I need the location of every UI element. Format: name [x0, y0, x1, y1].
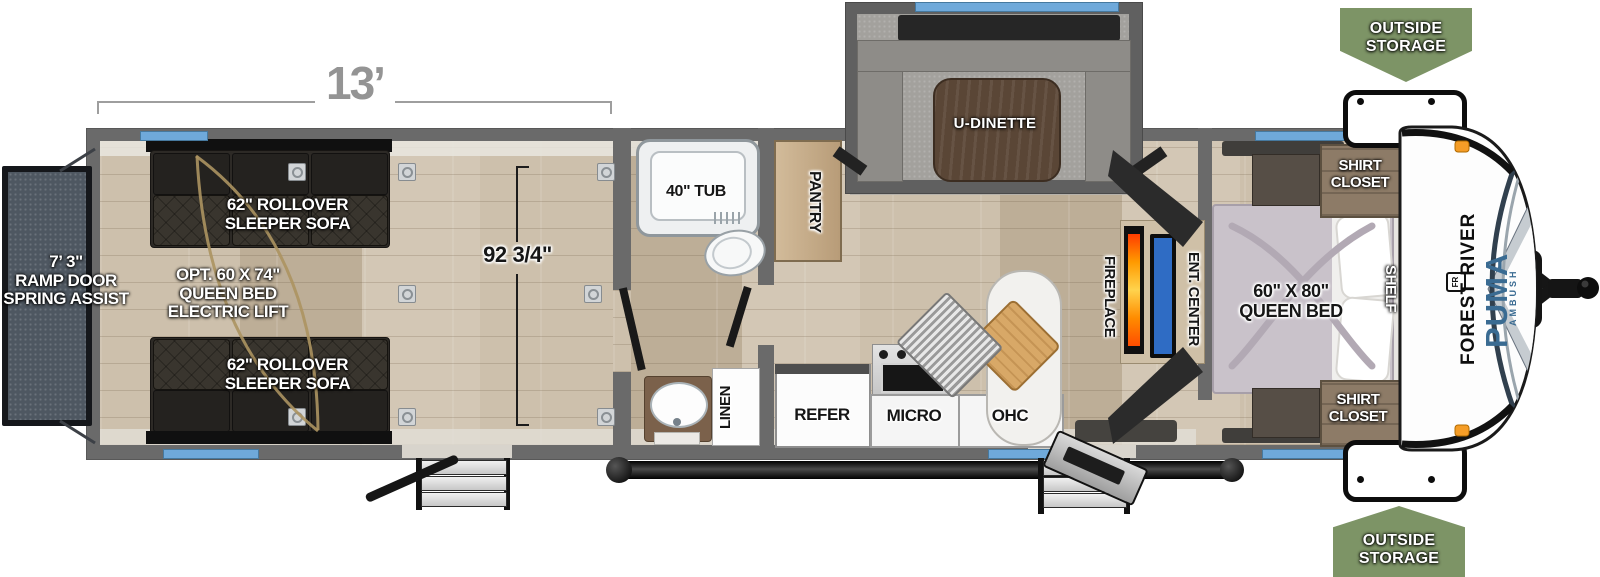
shirt-closet-line2: CLOSET: [1331, 174, 1389, 191]
step-tread: [421, 492, 507, 507]
refrigerator-top-trim: [775, 364, 869, 374]
dinette-bench-top: [857, 40, 1131, 72]
shirt-closet-bottom-label: SHIRT CLOSET: [1318, 392, 1398, 425]
tie-down-ring: [584, 285, 602, 303]
fireplace-flame: [1128, 234, 1140, 346]
linen-closet-label: LINEN: [718, 376, 752, 438]
marker-light-bottom: [1455, 425, 1469, 436]
tie-down-ring: [288, 408, 306, 426]
tie-down-ring: [288, 163, 306, 181]
bathroom-faucet: [673, 418, 681, 426]
entry-floor-mat: [1075, 420, 1177, 442]
tie-down-ring: [398, 408, 416, 426]
shirt-closet-line2: CLOSET: [1329, 408, 1387, 425]
bath-kitchen-wall-lower: [758, 345, 774, 458]
tie-down-ring: [398, 163, 416, 181]
compartment-latch-dot: [1428, 98, 1435, 105]
sofa-label-line2: SLEEPER SOFA: [225, 374, 351, 393]
bathtub-label: 40" TUB: [650, 183, 742, 201]
brand-ambush: AMBUSH: [1508, 264, 1519, 330]
sofa-bottom-label: 62" ROLLOVER SLEEPER SOFA: [190, 356, 385, 393]
compartment-latch-dot: [1357, 476, 1364, 483]
awning-rod-cap-right: [1220, 458, 1244, 482]
dinette-slideout-window: [915, 2, 1119, 12]
opt-label-line2: QUEEN BED: [179, 284, 276, 303]
front-compartment-bottom: [1343, 440, 1467, 502]
garage-bottom-window: [163, 449, 259, 459]
garage-length-dim-tick-right: [610, 101, 612, 114]
sofa-top-back-cushion: [311, 153, 388, 195]
bedroom-top-window: [1255, 131, 1352, 141]
dinette-back-counter: [898, 15, 1120, 41]
ramp-label-line3: SPRING ASSIST: [3, 289, 128, 308]
garage-width-dim-tick-bottom: [516, 424, 529, 426]
garage-width-label: 92 3/4": [460, 243, 575, 267]
optional-queen-bed-label: OPT. 60 X 74" QUEEN BED ELECTRIC LIFT: [158, 266, 298, 322]
garage-width-dim-line-top: [516, 166, 518, 242]
outside-storage-line2: STORAGE: [1366, 38, 1446, 55]
outside-storage-line1: OUTSIDE: [1370, 20, 1443, 37]
garage-length-dim-tick-left: [97, 101, 99, 114]
compartment-latch-dot: [1357, 98, 1364, 105]
garage-top-window: [140, 131, 208, 141]
refrigerator-label: REFER: [780, 406, 864, 425]
pantry-label: PANTRY: [789, 154, 823, 250]
ramp-label-line2: RAMP DOOR: [15, 271, 117, 290]
outside-storage-banner-top: OUTSIDE STORAGE: [1340, 8, 1472, 82]
shirt-closet-line1: SHIRT: [1338, 157, 1381, 174]
tie-down-ring: [597, 163, 615, 181]
outside-storage-label: OUTSIDE STORAGE: [1340, 20, 1472, 55]
outside-storage-label: OUTSIDE STORAGE: [1333, 532, 1465, 567]
garage-width-dim-line-bottom: [516, 274, 518, 426]
bed-label-line1: 60" X 80": [1253, 281, 1329, 301]
bed-nightstand-bottom: [1252, 388, 1320, 438]
tie-down-ring: [398, 285, 416, 303]
brand-puma: PUMA: [1479, 234, 1511, 366]
garage-length-label: 13’: [300, 58, 410, 109]
shirt-closet-line1: SHIRT: [1336, 391, 1379, 408]
sofa-top-back-cushion: [153, 153, 230, 195]
garage-length-dim-line-left: [97, 101, 315, 103]
tie-down-ring: [597, 408, 615, 426]
sofa-bottom-back-cushion: [311, 390, 388, 432]
fireplace-label: FIREPLACE: [1097, 228, 1117, 366]
sofa-label-line1: 62" ROLLOVER: [227, 355, 348, 374]
outside-storage-line2: STORAGE: [1359, 550, 1439, 567]
sofa-bottom-frame-bar: [146, 431, 392, 444]
shelf-label: SHELF: [1378, 254, 1398, 324]
sofa-top-label: 62" ROLLOVER SLEEPER SOFA: [190, 196, 385, 233]
ramp-door-label: 7’ 3" RAMP DOOR SPRING ASSIST: [2, 253, 130, 309]
microwave-label: MICRO: [874, 407, 954, 426]
sofa-bottom-back-cushion: [153, 390, 230, 432]
outside-storage-banner-bottom: OUTSIDE STORAGE: [1333, 506, 1465, 577]
bedroom-bottom-window: [1262, 449, 1344, 459]
floorplan-canvas: 13’ 7’ 3" RAMP DOOR SPRING ASSIST 6: [0, 0, 1600, 577]
garage-width-dim-tick-top: [516, 166, 529, 168]
bed-label-line2: QUEEN BED: [1239, 301, 1342, 321]
brand-forest-river: FOREST RIVER: [1458, 182, 1480, 396]
entertainment-center-label: ENT. CENTER: [1177, 228, 1201, 370]
garage-length-dim-line-right: [395, 101, 612, 103]
bed-nightstand-top: [1252, 154, 1320, 206]
sofa-label-line1: 62" ROLLOVER: [227, 195, 348, 214]
bathtub-drain-detail: [714, 212, 744, 224]
hitch-assembly: [1508, 247, 1599, 330]
awning-rod-cap-left: [606, 457, 632, 483]
tv-screen: [1154, 238, 1172, 354]
ramp-label-line1: 7’ 3": [49, 252, 82, 271]
stove-burner: [879, 350, 888, 359]
compartment-latch-dot: [1428, 476, 1435, 483]
dinette-label: U-DINETTE: [933, 116, 1057, 133]
shirt-closet-top-label: SHIRT CLOSET: [1322, 158, 1398, 191]
opt-label-line1: OPT. 60 X 74": [176, 265, 280, 284]
step-tread: [421, 476, 507, 491]
outside-storage-line1: OUTSIDE: [1363, 532, 1436, 549]
queen-bed-label: 60" X 80" QUEEN BED: [1216, 282, 1366, 322]
opt-label-line3: ELECTRIC LIFT: [168, 302, 288, 321]
vanity-step: [654, 432, 700, 445]
sofa-label-line2: SLEEPER SOFA: [225, 214, 351, 233]
overhead-cabinet-label: OHC: [962, 407, 1058, 426]
